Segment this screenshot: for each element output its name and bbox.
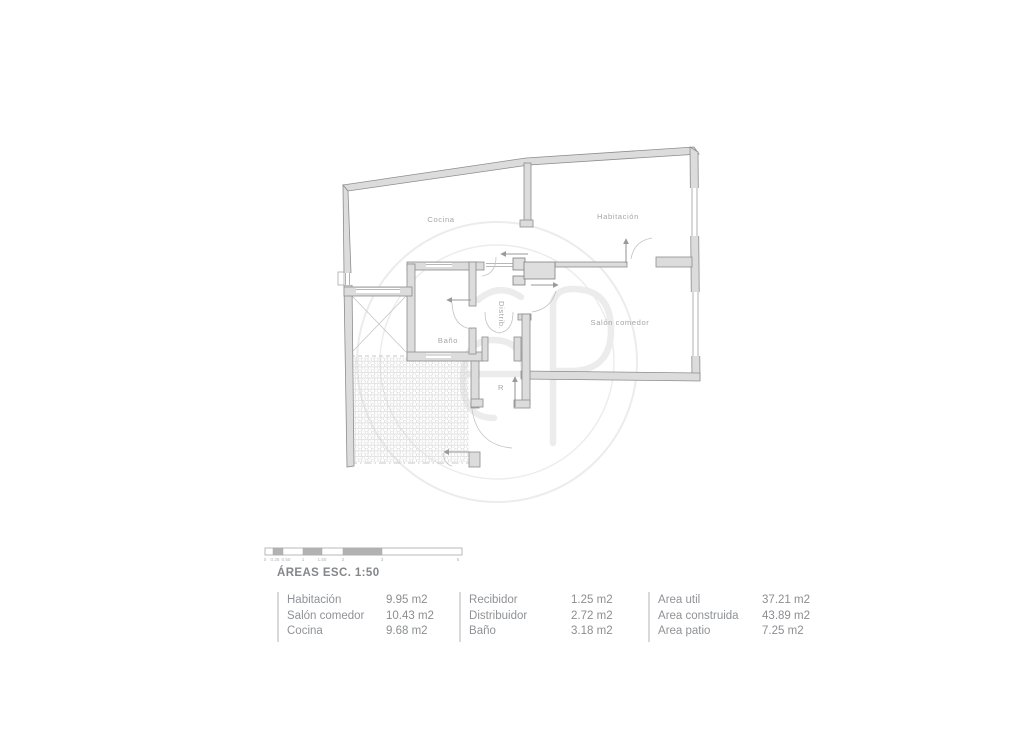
wall-patio-stub: [469, 452, 480, 467]
areas-column-service: Recibidor 1.25 m2 Distribuidor 2.72 m2 B…: [459, 592, 639, 642]
room-label-bano: Baño: [438, 336, 458, 345]
area-label: Recibidor: [469, 593, 571, 609]
svg-text:2: 2: [342, 557, 345, 562]
area-label: Distribuidor: [469, 609, 571, 625]
room-label-salon: Salón comedor: [591, 318, 650, 327]
area-value: 3.18 m2: [571, 624, 613, 640]
area-label: Habitación: [287, 593, 386, 609]
area-value: 2.72 m2: [571, 609, 613, 625]
scale-bar: 0 0.25 0.50 1 1.50 2 3 5: [264, 548, 462, 562]
window-left-wall: [338, 272, 353, 285]
windows: [338, 188, 702, 360]
svg-text:3: 3: [381, 557, 384, 562]
arc-bano-door: [452, 303, 472, 329]
svg-text:0: 0: [264, 557, 267, 562]
window-shaft-top: [356, 288, 400, 295]
areas-columns: Habitación 9.95 m2 Salón comedor 10.43 m…: [277, 592, 837, 642]
area-label: Area util: [658, 593, 762, 609]
room-label-distrib: Distrib.: [497, 301, 506, 329]
areas-column-totals: Area util 37.21 m2 Area construida 43.89…: [648, 592, 837, 642]
area-label: Cocina: [287, 624, 386, 640]
svg-text:1.50: 1.50: [318, 557, 327, 562]
wall-salon-bottom: [521, 371, 700, 381]
area-row: Recibidor 1.25 m2: [469, 593, 639, 609]
arc-habitacion-door: [631, 238, 652, 259]
area-label: Area construida: [658, 609, 762, 625]
area-label: Salón comedor: [287, 609, 386, 625]
area-row: Habitación 9.95 m2: [287, 593, 452, 609]
room-label-recibidor: R: [498, 383, 504, 392]
window-bano-bottom: [426, 354, 451, 361]
svg-text:0.25: 0.25: [271, 557, 280, 562]
wall-habitacion-salon: [555, 262, 627, 267]
pass-counter-lines: [486, 264, 513, 267]
area-value: 1.25 m2: [571, 593, 613, 609]
area-row: Area util 37.21 m2: [658, 593, 837, 609]
entry-closet: [513, 258, 555, 285]
area-row: Area patio 7.25 m2: [658, 624, 837, 640]
area-row: Baño 3.18 m2: [469, 624, 639, 640]
area-label: Area patio: [658, 624, 762, 640]
area-value: 37.21 m2: [762, 593, 810, 609]
window-right-upper: [690, 188, 701, 236]
area-row: Area construida 43.89 m2: [658, 609, 837, 625]
area-value: 10.43 m2: [386, 609, 434, 625]
window-cocina-bano: [426, 263, 452, 269]
scale-bar-labels: 0 0.25 0.50 1 1.50 2 3 5: [264, 557, 460, 562]
wall-salon-west: [522, 314, 530, 404]
areas-column-rooms: Habitación 9.95 m2 Salón comedor 10.43 m…: [277, 592, 452, 642]
wall-distrib-jamb-west: [482, 337, 488, 361]
area-value: 7.25 m2: [762, 624, 804, 640]
wall-top: [343, 147, 699, 191]
area-value: 43.89 m2: [762, 609, 810, 625]
wall-left-lower: [344, 285, 354, 467]
area-row: Cocina 9.68 m2: [287, 624, 452, 640]
area-row: Distribuidor 2.72 m2: [469, 609, 639, 625]
room-label-habitacion: Habitación: [597, 212, 639, 221]
wall-distrib-jamb-east: [514, 337, 521, 361]
wall-bano-east-lower: [469, 328, 476, 354]
wall-bano-east-upper: [469, 262, 476, 306]
svg-text:0.50: 0.50: [282, 557, 291, 562]
svg-text:1: 1: [302, 557, 305, 562]
svg-text:5: 5: [457, 557, 460, 562]
areas-panel: ÁREAS ESC. 1:50 Habitación 9.95 m2 Salón…: [277, 567, 837, 642]
wall-bano-west: [407, 264, 415, 360]
window-right-lower: [691, 292, 702, 356]
wall-left-upper: [343, 185, 351, 274]
area-value: 9.95 m2: [386, 593, 428, 609]
wall-cocina-habitacion: [524, 163, 531, 222]
area-value: 9.68 m2: [386, 624, 428, 640]
area-row: Salón comedor 10.43 m2: [287, 609, 452, 625]
floorplan-page: { "plan": { "rooms": { "cocina": "Cocina…: [0, 0, 1009, 740]
room-label-cocina: Cocina: [427, 215, 454, 224]
areas-title: ÁREAS ESC. 1:50: [277, 567, 837, 579]
area-label: Baño: [469, 624, 571, 640]
